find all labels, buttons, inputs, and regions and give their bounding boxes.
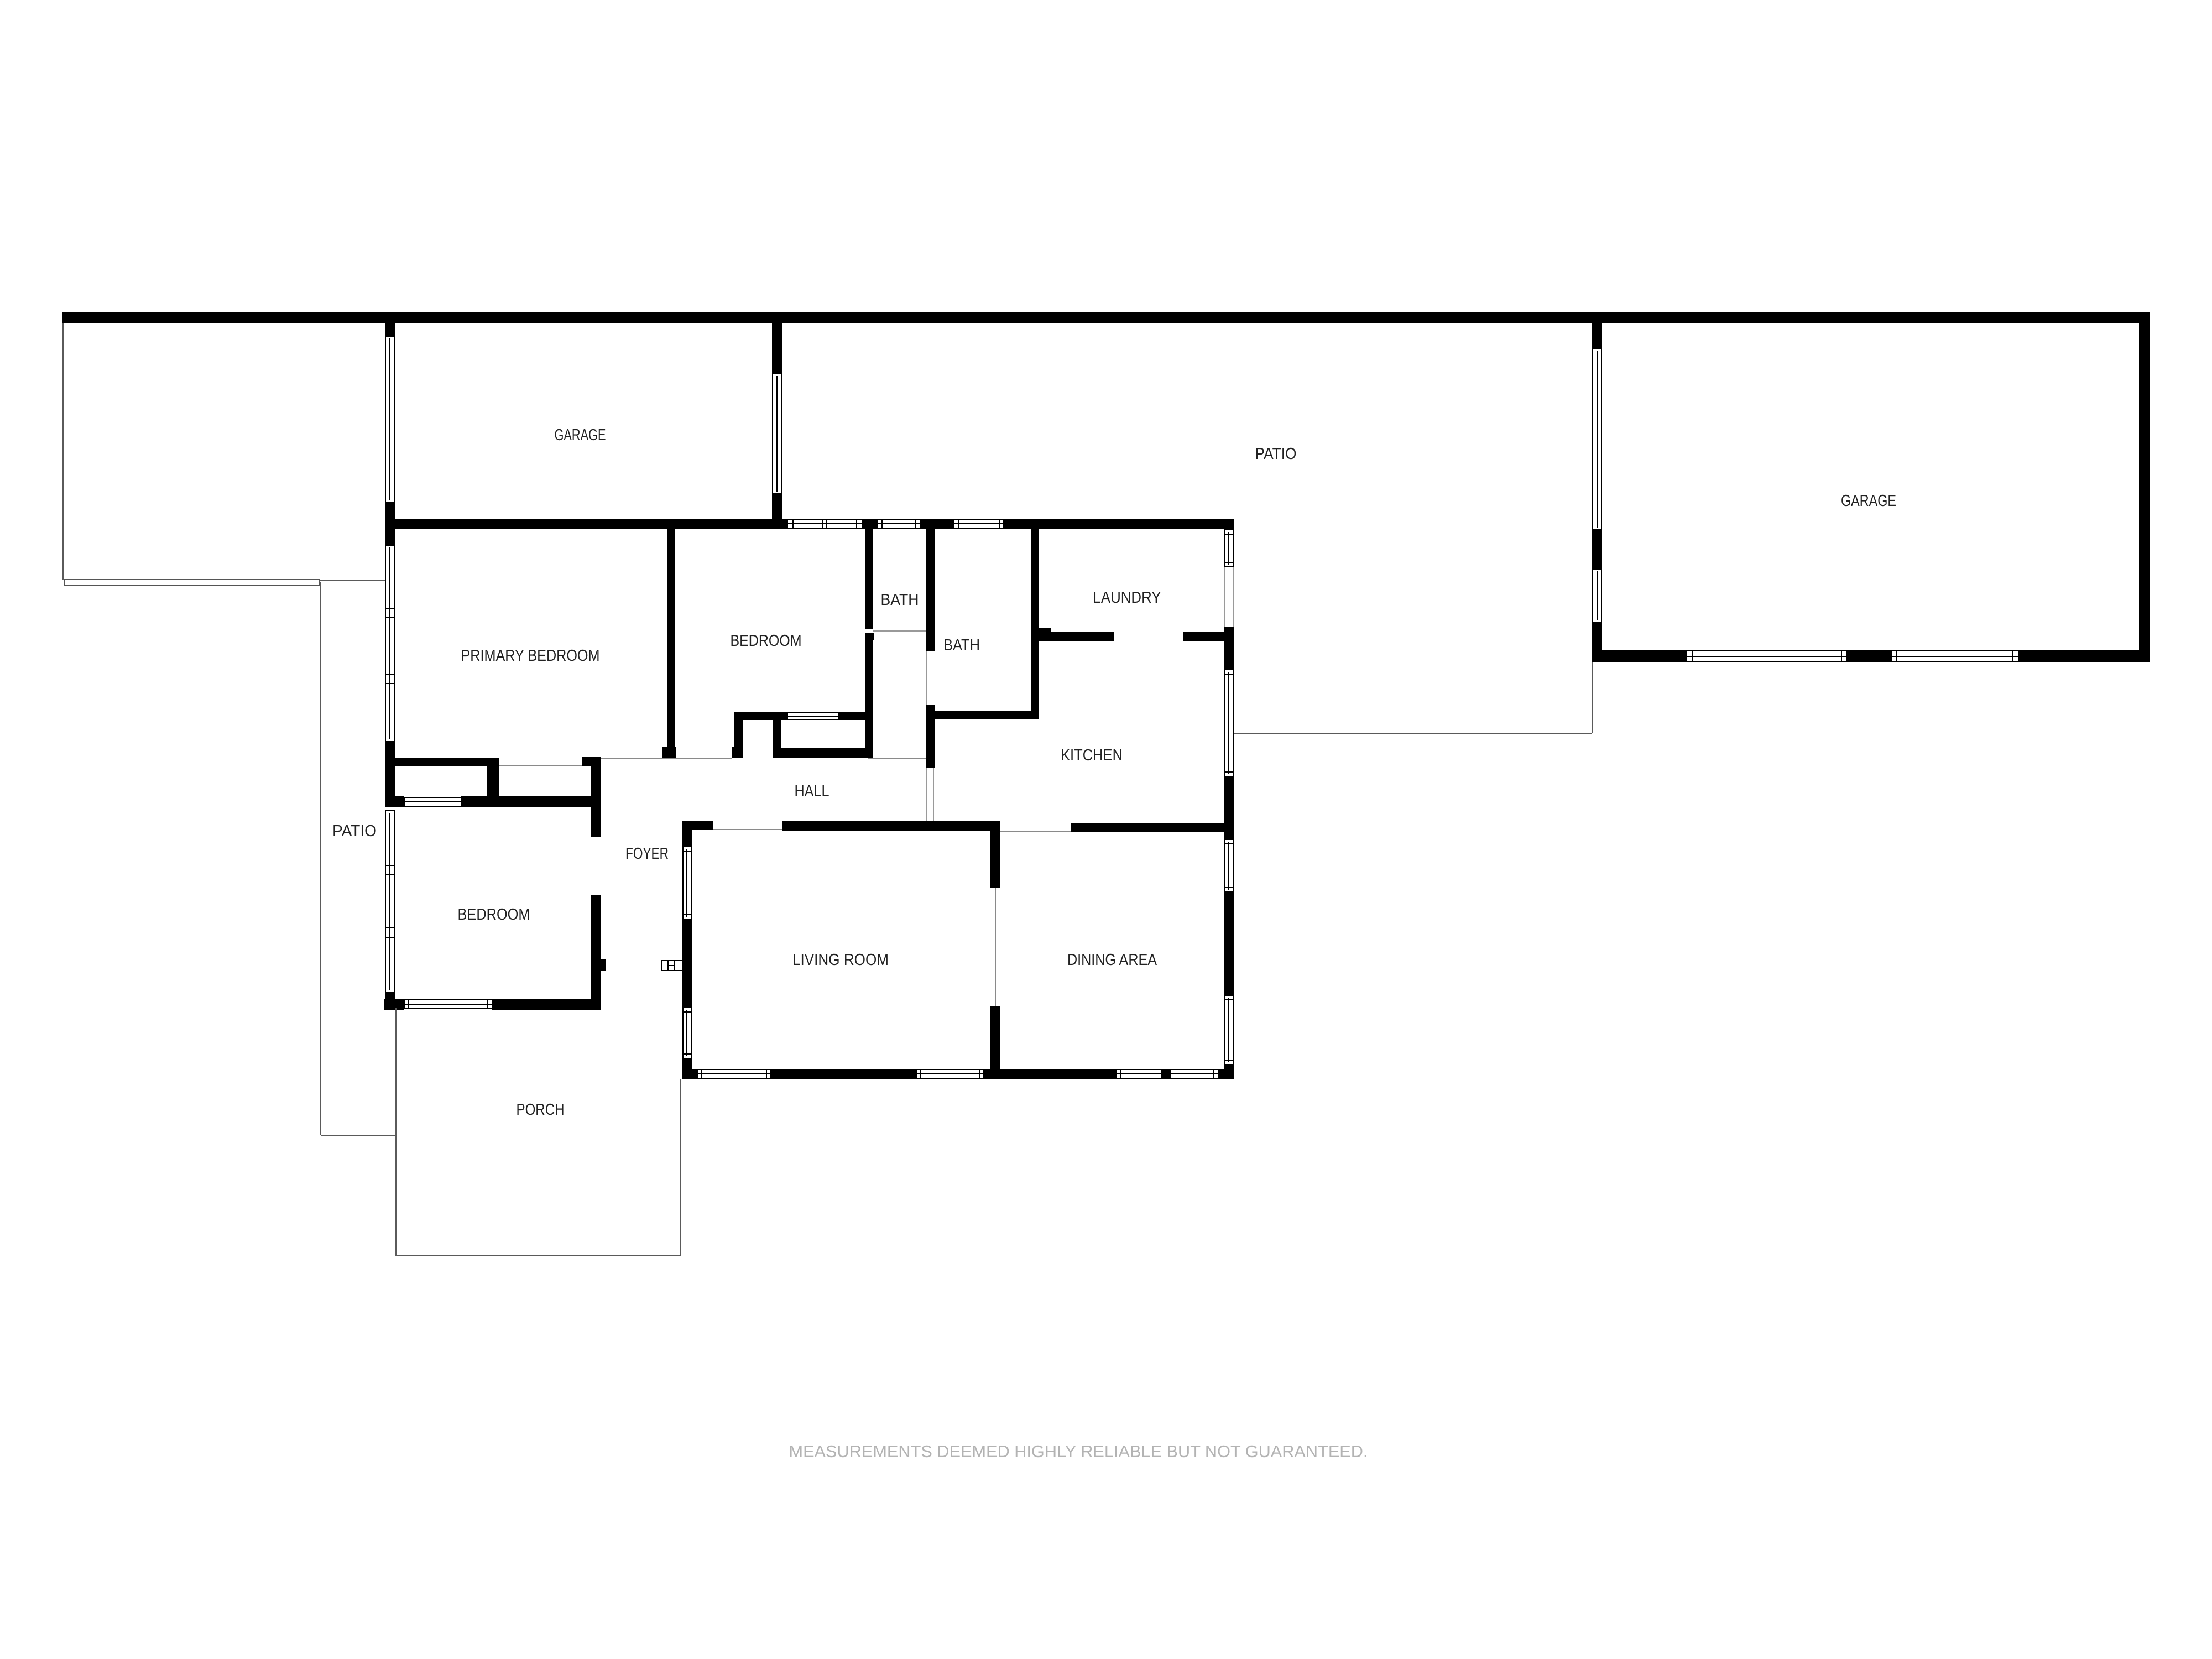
svg-text:FOYER: FOYER (625, 845, 669, 863)
svg-text:BATH: BATH (881, 591, 919, 609)
svg-text:MEASUREMENTS DEEMED HIGHLY REL: MEASUREMENTS DEEMED HIGHLY RELIABLE BUT … (789, 1442, 1368, 1461)
svg-text:KITCHEN: KITCHEN (1061, 747, 1123, 764)
svg-text:PATIO: PATIO (1255, 445, 1297, 463)
svg-text:BEDROOM: BEDROOM (458, 906, 530, 924)
svg-text:PRIMARY BEDROOM: PRIMARY BEDROOM (461, 647, 600, 665)
svg-text:LIVING ROOM: LIVING ROOM (792, 951, 889, 969)
svg-text:GARAGE: GARAGE (555, 426, 606, 444)
svg-text:PATIO: PATIO (332, 822, 377, 840)
svg-text:BATH: BATH (943, 637, 980, 654)
svg-text:BEDROOM: BEDROOM (731, 632, 802, 650)
svg-text:DINING AREA: DINING AREA (1067, 951, 1157, 969)
svg-text:PORCH: PORCH (517, 1101, 565, 1119)
svg-text:HALL: HALL (795, 782, 830, 800)
svg-text:LAUNDRY: LAUNDRY (1093, 589, 1161, 607)
svg-text:GARAGE: GARAGE (1841, 492, 1896, 510)
